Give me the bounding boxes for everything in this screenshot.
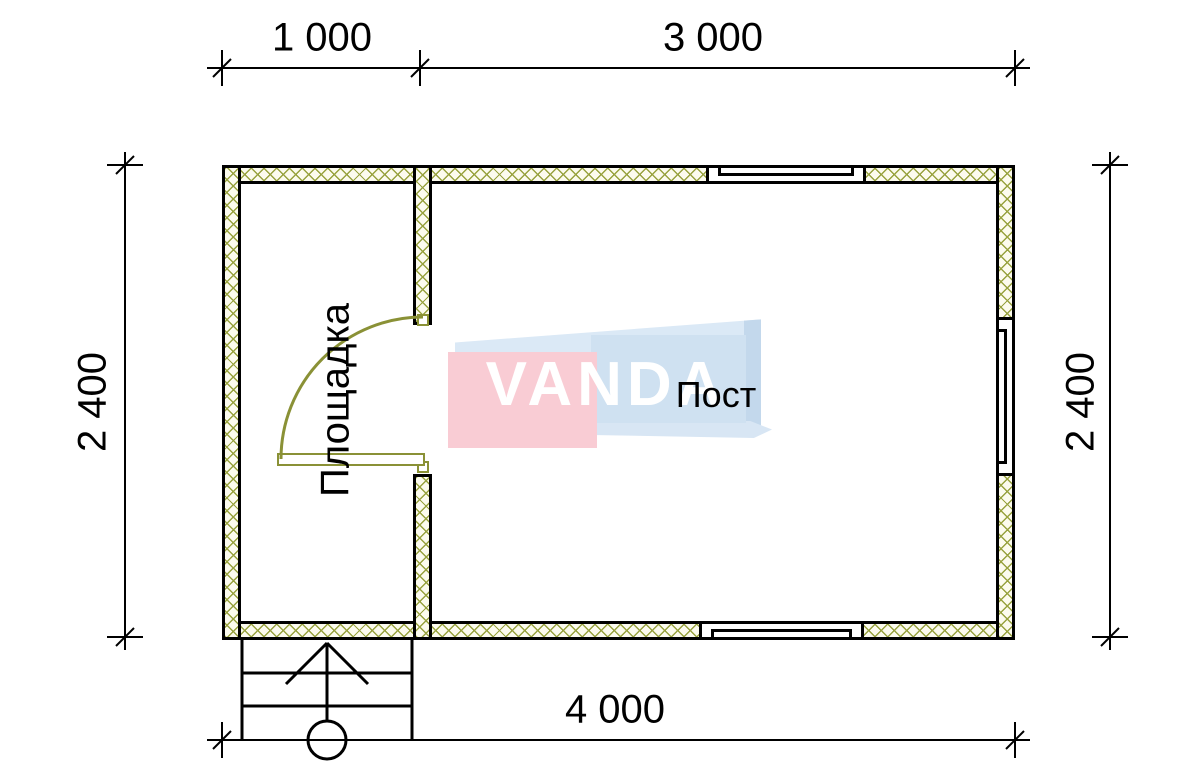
column-marker-icon	[308, 721, 346, 759]
dim-label-2400-left: 2 400	[71, 352, 116, 452]
window-pane-icon	[998, 329, 1007, 464]
direction-arrow-icon	[286, 643, 368, 722]
door-jamb-top	[417, 314, 429, 326]
logo-bottom-face	[591, 421, 772, 438]
window-right-wall	[996, 317, 1015, 476]
step-treads	[242, 640, 412, 740]
dim-label-2400-right: 2 400	[1059, 352, 1104, 452]
wall-top	[222, 165, 1015, 184]
window-pane-icon	[718, 167, 854, 176]
entrance-steps	[242, 640, 412, 759]
wall-left	[222, 165, 241, 640]
room-label-entrance: Площадка	[314, 303, 359, 497]
dim-label-3000: 3 000	[663, 16, 763, 61]
dim-label-1000: 1 000	[272, 16, 372, 61]
dim-label-4000: 4 000	[565, 688, 665, 733]
window-bottom-wall	[699, 621, 864, 640]
partition-wall-upper	[413, 165, 432, 325]
floor-plan-canvas: VANDA 1 000 3 000 2 400 2 400 4 000 Площ…	[0, 0, 1200, 772]
window-pane-icon	[711, 629, 852, 638]
window-top-wall	[706, 165, 866, 184]
partition-wall-lower	[413, 474, 432, 640]
room-label-main: Пост	[676, 374, 756, 416]
wall-bottom	[222, 621, 1015, 640]
